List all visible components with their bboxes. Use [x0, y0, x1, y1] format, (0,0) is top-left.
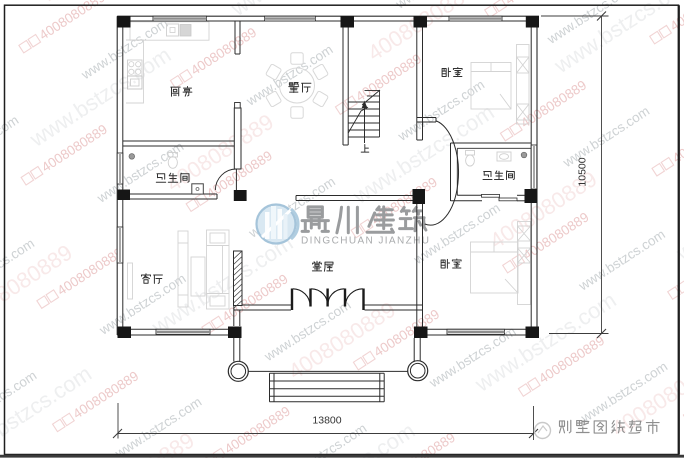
svg-text:13800: 13800	[312, 415, 341, 427]
svg-text:10500: 10500	[577, 157, 589, 186]
svg-text:DINGCHUAN JIANZHU: DINGCHUAN JIANZHU	[301, 236, 430, 247]
